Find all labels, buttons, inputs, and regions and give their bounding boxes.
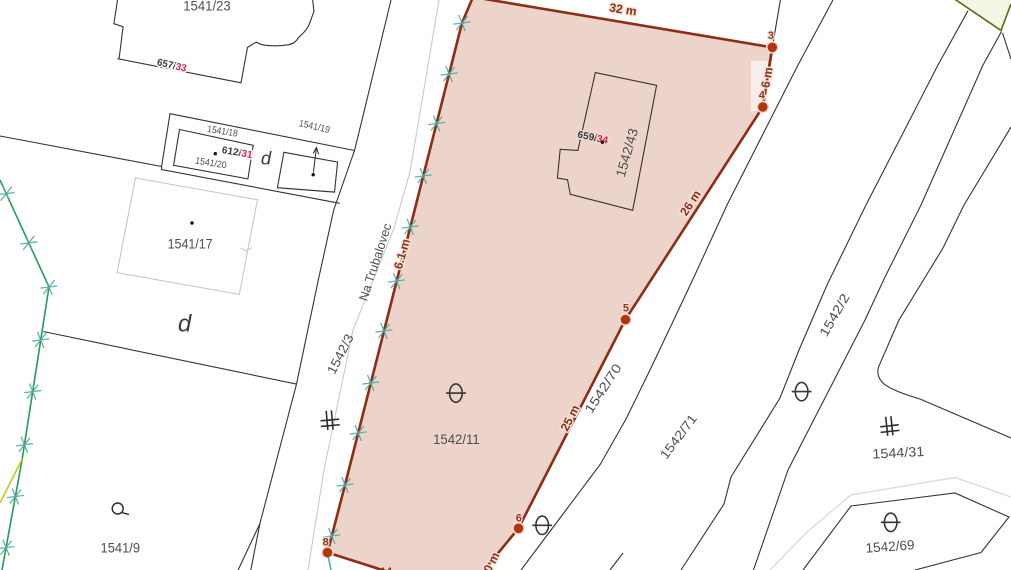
svg-text:3: 3 [768,30,774,42]
svg-text:8: 8 [323,537,329,549]
svg-text:6: 6 [516,512,522,524]
svg-text:5: 5 [623,302,629,314]
svg-text:1542/11: 1542/11 [433,432,480,447]
svg-text:d: d [261,147,272,168]
svg-text:4: 4 [759,90,766,102]
svg-text:d: d [178,311,192,338]
svg-text:1541/17: 1541/17 [168,237,213,252]
svg-text:1541/23: 1541/23 [183,0,231,14]
svg-text:1544/31: 1544/31 [872,444,925,462]
svg-text:1541/9: 1541/9 [101,541,141,556]
svg-text:14: 14 [380,566,393,570]
